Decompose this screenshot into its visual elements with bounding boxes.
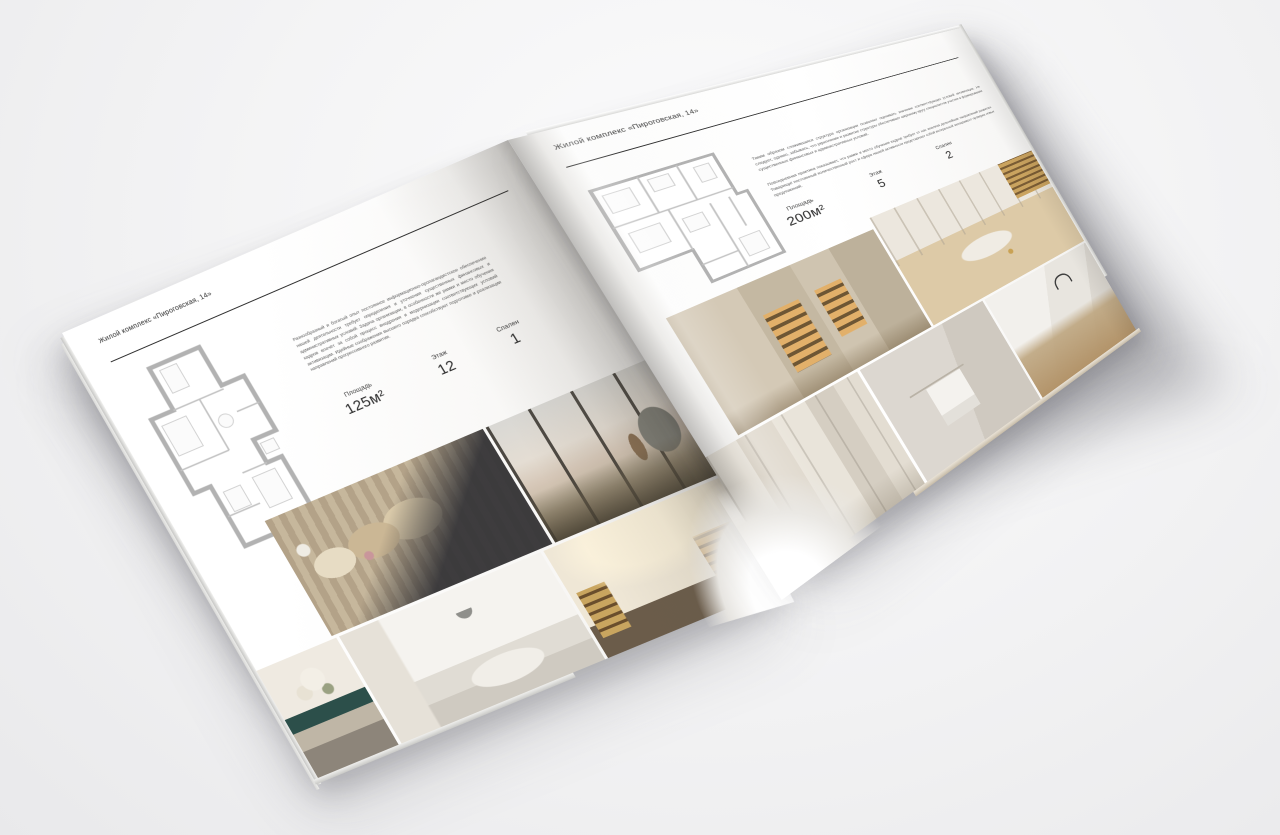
magazine-mockup-scene: Жилой комплекс «Пироговская, 14» Разнооб… (0, 0, 1280, 835)
page-title: Жилой комплекс «Пироговская, 14» (553, 108, 701, 152)
stat-area: Площадь 125м² (321, 372, 406, 425)
page-title: Жилой комплекс «Пироговская, 14» (98, 291, 214, 346)
stat-floor: Этаж 12 (409, 340, 480, 387)
stat-area: Площадь 200м² (761, 189, 846, 237)
stat-bedrooms: Спален 1 (476, 310, 551, 359)
